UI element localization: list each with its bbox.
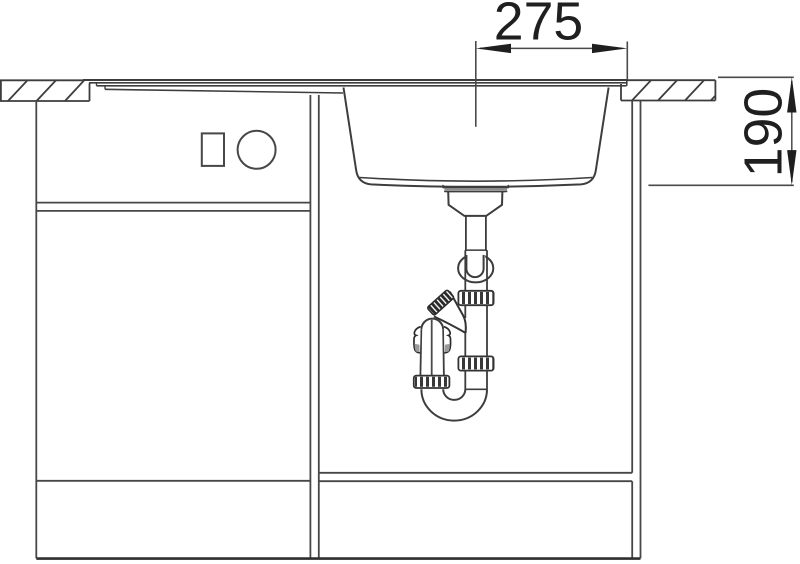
svg-text:190: 190 xyxy=(734,88,794,177)
svg-text:275: 275 xyxy=(494,0,583,51)
